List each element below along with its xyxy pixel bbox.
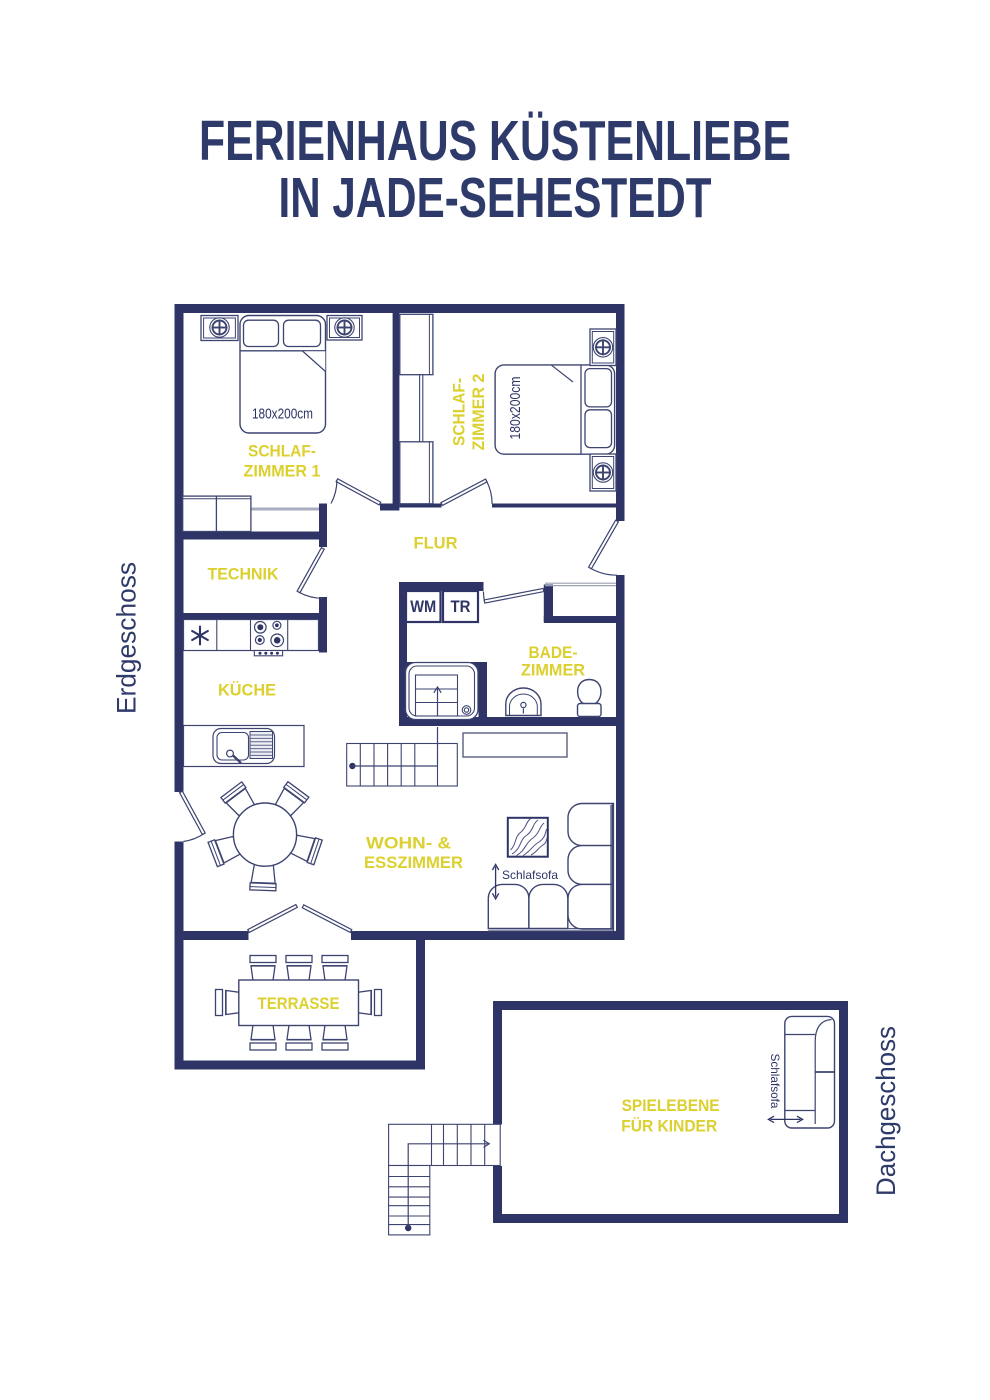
svg-text:ZIMMER 2: ZIMMER 2 xyxy=(470,374,488,451)
svg-text:ZIMMER 1: ZIMMER 1 xyxy=(244,462,321,480)
svg-text:Dachgeschoss: Dachgeschoss xyxy=(871,1026,901,1196)
svg-text:SPIELEBENE: SPIELEBENE xyxy=(622,1097,720,1115)
svg-text:FÜR KINDER: FÜR KINDER xyxy=(621,1117,717,1136)
svg-text:SCHLAF-: SCHLAF- xyxy=(451,378,469,446)
svg-text:Schlafsofa: Schlafsofa xyxy=(768,1054,782,1109)
svg-text:FLUR: FLUR xyxy=(414,535,458,553)
svg-text:KÜCHE: KÜCHE xyxy=(218,681,276,700)
svg-text:IN JADE-SEHESTEDT: IN JADE-SEHESTEDT xyxy=(279,166,712,230)
svg-text:Schlafsofa: Schlafsofa xyxy=(502,868,558,882)
svg-text:WOHN- &: WOHN- & xyxy=(366,835,451,853)
svg-text:TR: TR xyxy=(451,597,471,616)
svg-text:FERIENHAUS KÜSTENLIEBE: FERIENHAUS KÜSTENLIEBE xyxy=(199,109,791,173)
svg-text:ESSZIMMER: ESSZIMMER xyxy=(364,854,463,872)
svg-text:180x200cm: 180x200cm xyxy=(252,406,313,423)
svg-text:180x200cm: 180x200cm xyxy=(507,377,524,440)
svg-text:ZIMMER: ZIMMER xyxy=(521,662,585,680)
svg-text:BADE-: BADE- xyxy=(529,644,578,662)
svg-text:Erdgeschoss: Erdgeschoss xyxy=(112,562,142,714)
svg-text:SCHLAF-: SCHLAF- xyxy=(248,443,316,461)
svg-text:WM: WM xyxy=(410,597,436,616)
svg-text:TECHNIK: TECHNIK xyxy=(208,566,279,584)
svg-text:TERRASSE: TERRASSE xyxy=(258,995,340,1013)
